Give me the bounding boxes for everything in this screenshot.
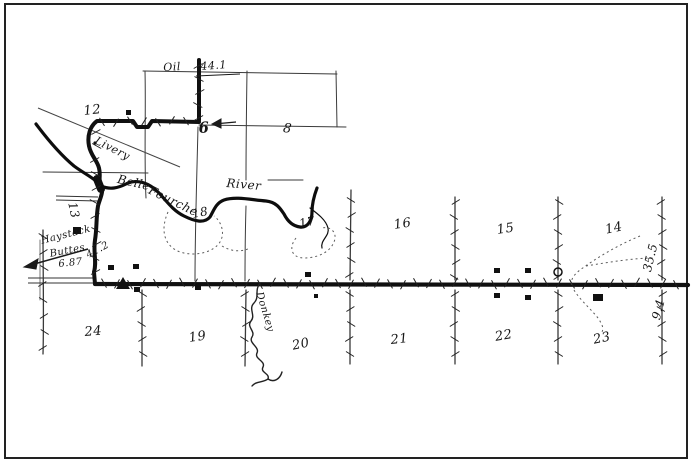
creek-main [250, 283, 269, 379]
meander-loop-east [292, 228, 335, 258]
meander-arm [222, 246, 250, 251]
building-marker [525, 295, 531, 300]
building-marker [305, 272, 311, 277]
river-main [101, 182, 317, 228]
side-roads [28, 196, 98, 283]
building-marker [108, 265, 114, 270]
building-markers [73, 110, 603, 301]
building-marker [494, 293, 500, 298]
grid-line [245, 206, 246, 281]
road-hatch-ticks [38, 64, 678, 357]
route-west-leg [88, 121, 199, 284]
section-grid [40, 71, 662, 366]
grid-line [143, 71, 337, 74]
dotted-meanders [164, 212, 654, 332]
haystack-arrow-head [24, 259, 38, 269]
junction-arrow-head [212, 119, 221, 128]
building-marker [133, 264, 139, 269]
creek-fork-right [268, 372, 282, 381]
west-road-stub [28, 278, 93, 283]
map-linework [0, 0, 700, 470]
scanned-plat-map: Oil 44.1 Livery Belle Fourche River Donk… [0, 0, 700, 470]
building-marker [126, 110, 131, 115]
arrows [24, 74, 240, 269]
grid-line [245, 290, 246, 366]
building-marker [314, 294, 318, 298]
building-marker [195, 285, 201, 290]
grid-line [43, 172, 148, 173]
grid-line [336, 71, 337, 127]
donkey-creek [250, 283, 282, 386]
grid-line [195, 127, 198, 281]
building-marker [525, 268, 531, 273]
trail-line [38, 108, 180, 167]
building-marker [73, 227, 81, 234]
mileage-underline [196, 74, 240, 76]
dotted-trail-upper [571, 236, 640, 286]
building-marker [494, 268, 500, 273]
dotted-trail-branch [586, 258, 654, 266]
grid-line [145, 71, 146, 198]
creek-fork-left [252, 379, 268, 386]
building-marker [593, 294, 603, 301]
